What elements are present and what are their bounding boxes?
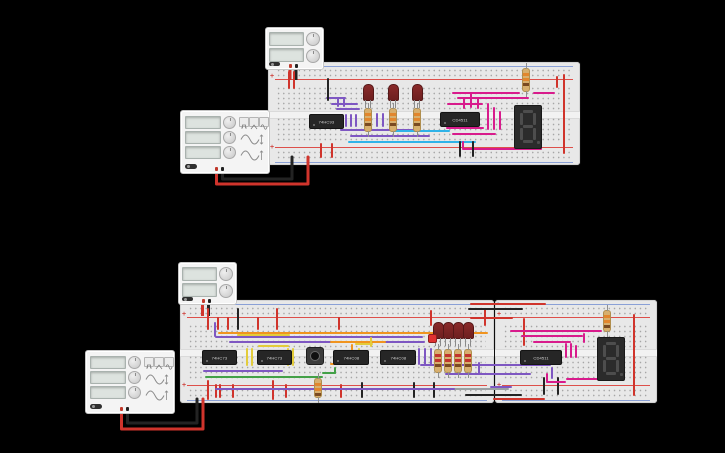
wire-magenta[interactable] [493,107,495,130]
wire-magenta[interactable] [477,97,479,109]
voltage-knob[interactable] [306,32,320,46]
wire-magenta[interactable] [452,133,496,135]
wire-red[interactable] [217,317,219,330]
power-toggle[interactable] [90,404,102,409]
wire-magenta[interactable] [463,97,465,109]
resistor[interactable] [603,310,611,332]
resistor[interactable] [364,108,372,132]
segment-b [616,345,619,357]
offset-knob[interactable] [223,146,236,159]
wire-purple[interactable] [203,370,283,372]
positive-terminal[interactable] [202,299,205,303]
wire-yellow[interactable] [292,348,294,366]
wire-red[interactable] [227,317,229,330]
segment-a [606,342,616,345]
resistor[interactable] [464,349,472,373]
wire-black[interactable] [237,308,239,330]
wire-purple[interactable] [478,362,480,374]
current-knob[interactable] [219,284,233,298]
ic-label: CD4511 [533,355,548,360]
ic-gate-74hc08-2[interactable]: 74HC08 [380,350,416,365]
offset-waveform-icon [145,389,169,407]
wire-red[interactable] [493,398,545,400]
square-wave-button[interactable] [144,357,154,367]
wire-purple[interactable] [345,114,347,127]
wire-red[interactable] [331,143,333,158]
resistor[interactable] [314,378,322,398]
power-supply-bottom[interactable] [178,262,237,305]
wire-black[interactable] [433,382,435,398]
resistor[interactable] [444,349,452,373]
wire-red[interactable] [288,71,290,89]
offset-waveform-icon [240,149,264,167]
sine-wave-button[interactable] [259,117,269,127]
wire-red[interactable] [215,384,217,398]
ground-terminal[interactable] [221,167,224,171]
wire-purple[interactable] [551,367,553,379]
segment-e [520,128,523,140]
power-supply-top[interactable] [265,27,324,70]
wire-green[interactable] [205,376,323,378]
wire-magenta[interactable] [487,103,489,130]
wire-blue[interactable] [348,141,476,143]
wire-magenta[interactable] [565,343,567,358]
ic-decoder-top-cd4511[interactable]: CD4511 [440,112,480,127]
pushbutton[interactable] [306,347,324,365]
wire-magenta[interactable] [546,381,566,383]
resistor[interactable] [454,349,462,373]
wire-magenta[interactable] [583,333,585,343]
offset-knob[interactable] [128,386,141,399]
wire-black[interactable] [327,78,329,101]
function-generator-top[interactable] [180,110,270,174]
ic-label: 74HC73 [267,355,283,360]
funcgen-screen [185,146,221,159]
wire-purple[interactable] [215,388,455,390]
funcgen-screen [90,356,126,369]
ic-label: 74HC73 [212,355,228,360]
segment-d [606,372,616,375]
segment-e [603,360,606,372]
wire-purple[interactable] [382,113,384,127]
psu-screen [269,48,304,62]
led-red[interactable] [412,84,423,101]
wire-red[interactable] [523,318,525,346]
wire-red[interactable] [207,380,209,400]
seven-segment-display-bottom[interactable] [597,337,625,381]
ic-decoder-bottom-cd4511[interactable]: CD4511 [520,350,562,365]
segment-d [523,140,533,143]
wire-yellow[interactable] [370,337,372,347]
ic-label: CD4511 [452,117,467,122]
psu-screen [182,283,217,297]
ic-label: 74HC08 [343,355,359,360]
wire-black[interactable] [465,394,522,396]
wire-red[interactable] [272,380,274,400]
triangle-wave-button[interactable] [154,357,164,367]
psu-screen [269,32,304,46]
positive-terminal[interactable] [289,64,292,68]
frequency-knob[interactable] [128,356,141,369]
wire-red[interactable] [556,76,558,88]
frequency-knob[interactable] [223,116,236,129]
wire-black[interactable] [459,141,461,157]
wire-red[interactable] [563,74,565,154]
wire-yellow[interactable] [246,348,248,366]
segment-c [533,128,536,140]
wire-black[interactable] [413,382,415,398]
segment-c [616,360,619,372]
signal-terminal[interactable] [120,407,123,411]
led-red[interactable] [463,322,474,339]
ground-terminal[interactable] [126,407,129,411]
wire-purple[interactable] [215,336,423,338]
psu-screen [182,267,217,281]
wire-magenta[interactable] [446,127,484,129]
wire-red[interactable] [219,384,221,398]
wire-magenta[interactable] [575,345,577,358]
wire-magenta[interactable] [546,373,548,382]
wire-green[interactable] [334,367,336,374]
segment-dp [620,373,623,376]
wire-red[interactable] [232,384,234,398]
wire-red[interactable] [276,308,278,330]
resistor[interactable] [522,68,530,92]
segment-b [533,113,536,125]
sine-wave-button[interactable] [164,357,174,367]
ic-label: 74HC93 [319,119,335,124]
wire-red[interactable] [338,317,340,330]
wire-yellow[interactable] [251,348,253,366]
wire-black[interactable] [468,308,523,310]
wire-purple[interactable] [229,341,425,343]
led-red[interactable] [388,84,399,101]
wire-red[interactable] [470,303,546,305]
wire-red[interactable] [320,143,322,158]
wire-black[interactable] [472,141,474,157]
ic-flipflop-74hc73-1[interactable]: 74HC73 [202,350,237,365]
triangle-wave-button[interactable] [249,117,259,127]
segment-g [606,357,616,360]
resistor[interactable] [389,108,397,132]
wire-red[interactable] [285,384,287,398]
wire-purple[interactable] [336,108,360,110]
power-toggle[interactable] [269,62,280,66]
wire-blue[interactable] [393,130,450,132]
ic-gate-74hc08-1[interactable]: 74HC08 [333,350,369,365]
signal-terminal[interactable] [215,167,218,171]
voltage-knob[interactable] [219,267,233,281]
segment-f [603,345,606,357]
wire-red[interactable] [207,308,209,330]
ic-counter-74hc93[interactable]: 74HC93 [309,114,344,129]
resistor[interactable] [413,108,421,132]
wire-purple[interactable] [214,322,216,337]
funcgen-screen [185,116,221,129]
wire-purple[interactable] [418,348,420,365]
wire-red[interactable] [430,310,432,326]
negative-terminal[interactable] [295,64,298,68]
wire-black[interactable] [361,382,363,398]
wire-purple[interactable] [355,114,357,127]
function-generator-bottom[interactable] [85,350,175,414]
wire-magenta[interactable] [533,92,555,94]
wire-magenta[interactable] [470,92,472,108]
ic-flipflop-74hc73-2[interactable]: 74HC73 [257,350,292,365]
seven-segment-display-top[interactable] [514,105,542,149]
wire-purple[interactable] [424,348,426,365]
wire-purple[interactable] [350,135,430,137]
resistor[interactable] [434,349,442,373]
wire-purple[interactable] [490,386,512,388]
wire-red[interactable] [293,71,295,89]
current-knob[interactable] [306,49,320,63]
wire-magenta[interactable] [570,343,572,358]
segment-g [523,125,533,128]
power-toggle[interactable] [185,164,197,169]
negative-terminal[interactable] [208,299,211,303]
funcgen-screen [90,371,126,384]
wire-purple[interactable] [350,114,352,127]
wire-red[interactable] [470,317,513,319]
funcgen-screen [185,131,221,144]
wire-black[interactable] [543,377,545,395]
segment-a [523,110,533,113]
wire-purple[interactable] [376,113,378,127]
wire-red[interactable] [257,317,259,330]
funcgen-screen [90,386,126,399]
led-red[interactable] [363,84,374,101]
wire-purple[interactable] [337,97,339,107]
wire-yellow[interactable] [258,345,289,347]
wire-magenta[interactable] [457,97,529,99]
led-indicator-red[interactable] [428,334,437,343]
wire-magenta[interactable] [510,330,602,332]
amplitude-knob[interactable] [128,371,141,384]
square-wave-button[interactable] [239,117,249,127]
circuit-canvas: - + + - + + - + + [0,0,725,453]
wire-yellow[interactable] [237,334,290,336]
amplitude-knob[interactable] [223,131,236,144]
segment-f [520,113,523,125]
wire-red[interactable] [340,384,342,398]
wire-magenta[interactable] [521,335,583,337]
power-toggle[interactable] [182,297,193,301]
wire-purple[interactable] [430,348,432,365]
wire-black[interactable] [557,377,559,395]
wire-magenta[interactable] [452,92,520,94]
wire-magenta[interactable] [499,111,501,130]
wire-purple[interactable] [343,97,345,107]
wire-red[interactable] [633,314,635,396]
ic-label: 74HC08 [390,355,406,360]
segment-dp [537,141,540,144]
